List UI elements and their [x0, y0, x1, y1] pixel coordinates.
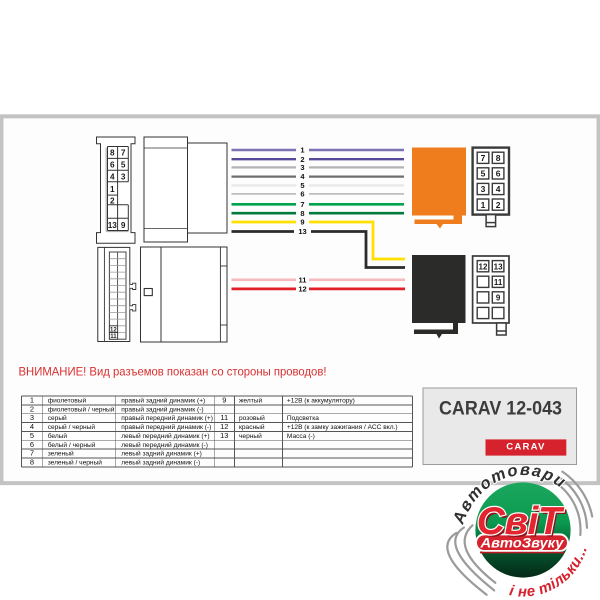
svg-text:+12В (к аккумулятору): +12В (к аккумулятору): [287, 398, 355, 405]
svg-text:4: 4: [30, 422, 34, 431]
svg-text:+12В (к замку зажигания / АСС: +12В (к замку зажигания / АСС вкл.): [287, 424, 398, 431]
svg-text:1: 1: [110, 185, 115, 194]
svg-text:7: 7: [121, 149, 126, 158]
svg-text:левый передний динамик (+): левый передний динамик (+): [121, 432, 209, 440]
svg-text:зеленый / черный: зеленый / черный: [48, 458, 103, 466]
svg-text:фиолетовый / черный: фиолетовый / черный: [48, 405, 115, 413]
svg-text:правый передний динамик (+): правый передний динамик (+): [121, 414, 213, 422]
svg-text:7: 7: [481, 153, 486, 163]
svg-text:9: 9: [121, 221, 126, 230]
svg-text:12: 12: [298, 285, 306, 294]
svg-text:1: 1: [300, 146, 304, 155]
svg-text:2: 2: [110, 196, 115, 205]
svg-text:6: 6: [300, 190, 304, 199]
svg-text:Подсветка: Подсветка: [287, 415, 319, 422]
svg-text:левый задний динамик (+): левый задний динамик (+): [121, 450, 202, 458]
svg-text:правый задний динамик (-): правый задний динамик (-): [121, 405, 203, 413]
svg-text:4: 4: [110, 172, 115, 181]
svg-text:8: 8: [30, 457, 34, 466]
svg-text:Масса (-): Масса (-): [287, 433, 315, 440]
svg-text:2: 2: [30, 404, 34, 413]
svg-text:1: 1: [30, 396, 34, 405]
svg-text:11: 11: [299, 275, 307, 284]
svg-text:левый передний динамик (-): левый передний динамик (-): [121, 441, 208, 449]
svg-text:7: 7: [300, 200, 304, 209]
svg-text:серый / черный: серый / черный: [48, 423, 96, 431]
svg-text:CARAV 12-043: CARAV 12-043: [439, 398, 562, 420]
svg-text:8: 8: [300, 209, 304, 218]
svg-text:12: 12: [479, 262, 488, 271]
svg-text:13: 13: [220, 431, 228, 440]
svg-text:9: 9: [300, 218, 304, 227]
svg-text:розовый: розовый: [239, 414, 265, 422]
svg-text:левый задний динамик (-): левый задний динамик (-): [121, 458, 200, 466]
svg-text:правый передний динамик (-): правый передний динамик (-): [121, 423, 211, 431]
svg-text:11: 11: [494, 278, 503, 287]
svg-text:черный: черный: [239, 432, 262, 440]
svg-text:9: 9: [222, 396, 226, 405]
svg-text:красный: красный: [239, 423, 265, 431]
svg-text:3: 3: [121, 172, 126, 181]
svg-text:12: 12: [110, 327, 117, 333]
svg-text:6: 6: [496, 169, 501, 179]
svg-text:13: 13: [298, 227, 306, 236]
svg-text:4: 4: [496, 184, 501, 194]
svg-text:2: 2: [496, 200, 501, 210]
svg-text:серый: серый: [48, 414, 67, 422]
svg-text:11: 11: [220, 413, 228, 422]
svg-text:правый задний динамик (+): правый задний динамик (+): [121, 397, 205, 405]
svg-text:СвіТ: СвіТ: [477, 500, 565, 543]
svg-text:3: 3: [30, 413, 34, 422]
svg-text:желтый: желтый: [239, 397, 262, 405]
svg-text:фиолетовый: фиолетовый: [48, 397, 87, 405]
svg-text:11: 11: [110, 334, 117, 340]
svg-text:зеленый: зеленый: [48, 450, 74, 458]
svg-text:8: 8: [496, 153, 501, 163]
svg-text:12: 12: [220, 422, 228, 431]
svg-text:6: 6: [110, 161, 115, 170]
svg-text:5: 5: [30, 431, 34, 440]
svg-text:8: 8: [110, 149, 115, 158]
svg-text:5: 5: [481, 169, 486, 179]
svg-text:CARAV: CARAV: [506, 441, 545, 452]
svg-text:13: 13: [108, 221, 118, 230]
svg-text:6: 6: [30, 440, 34, 449]
svg-text:1: 1: [481, 200, 486, 210]
svg-text:5: 5: [121, 161, 126, 170]
svg-text:9: 9: [496, 294, 501, 303]
svg-text:белый / черный: белый / черный: [48, 441, 96, 449]
svg-text:белый: белый: [48, 432, 68, 440]
svg-text:ВНИМАНИЕ! Вид разъемов показан: ВНИМАНИЕ! Вид разъемов показан со сторон…: [19, 365, 327, 378]
svg-text:13: 13: [494, 262, 503, 271]
svg-text:3: 3: [481, 184, 486, 194]
svg-text:7: 7: [30, 449, 34, 458]
svg-text:3: 3: [300, 163, 304, 172]
